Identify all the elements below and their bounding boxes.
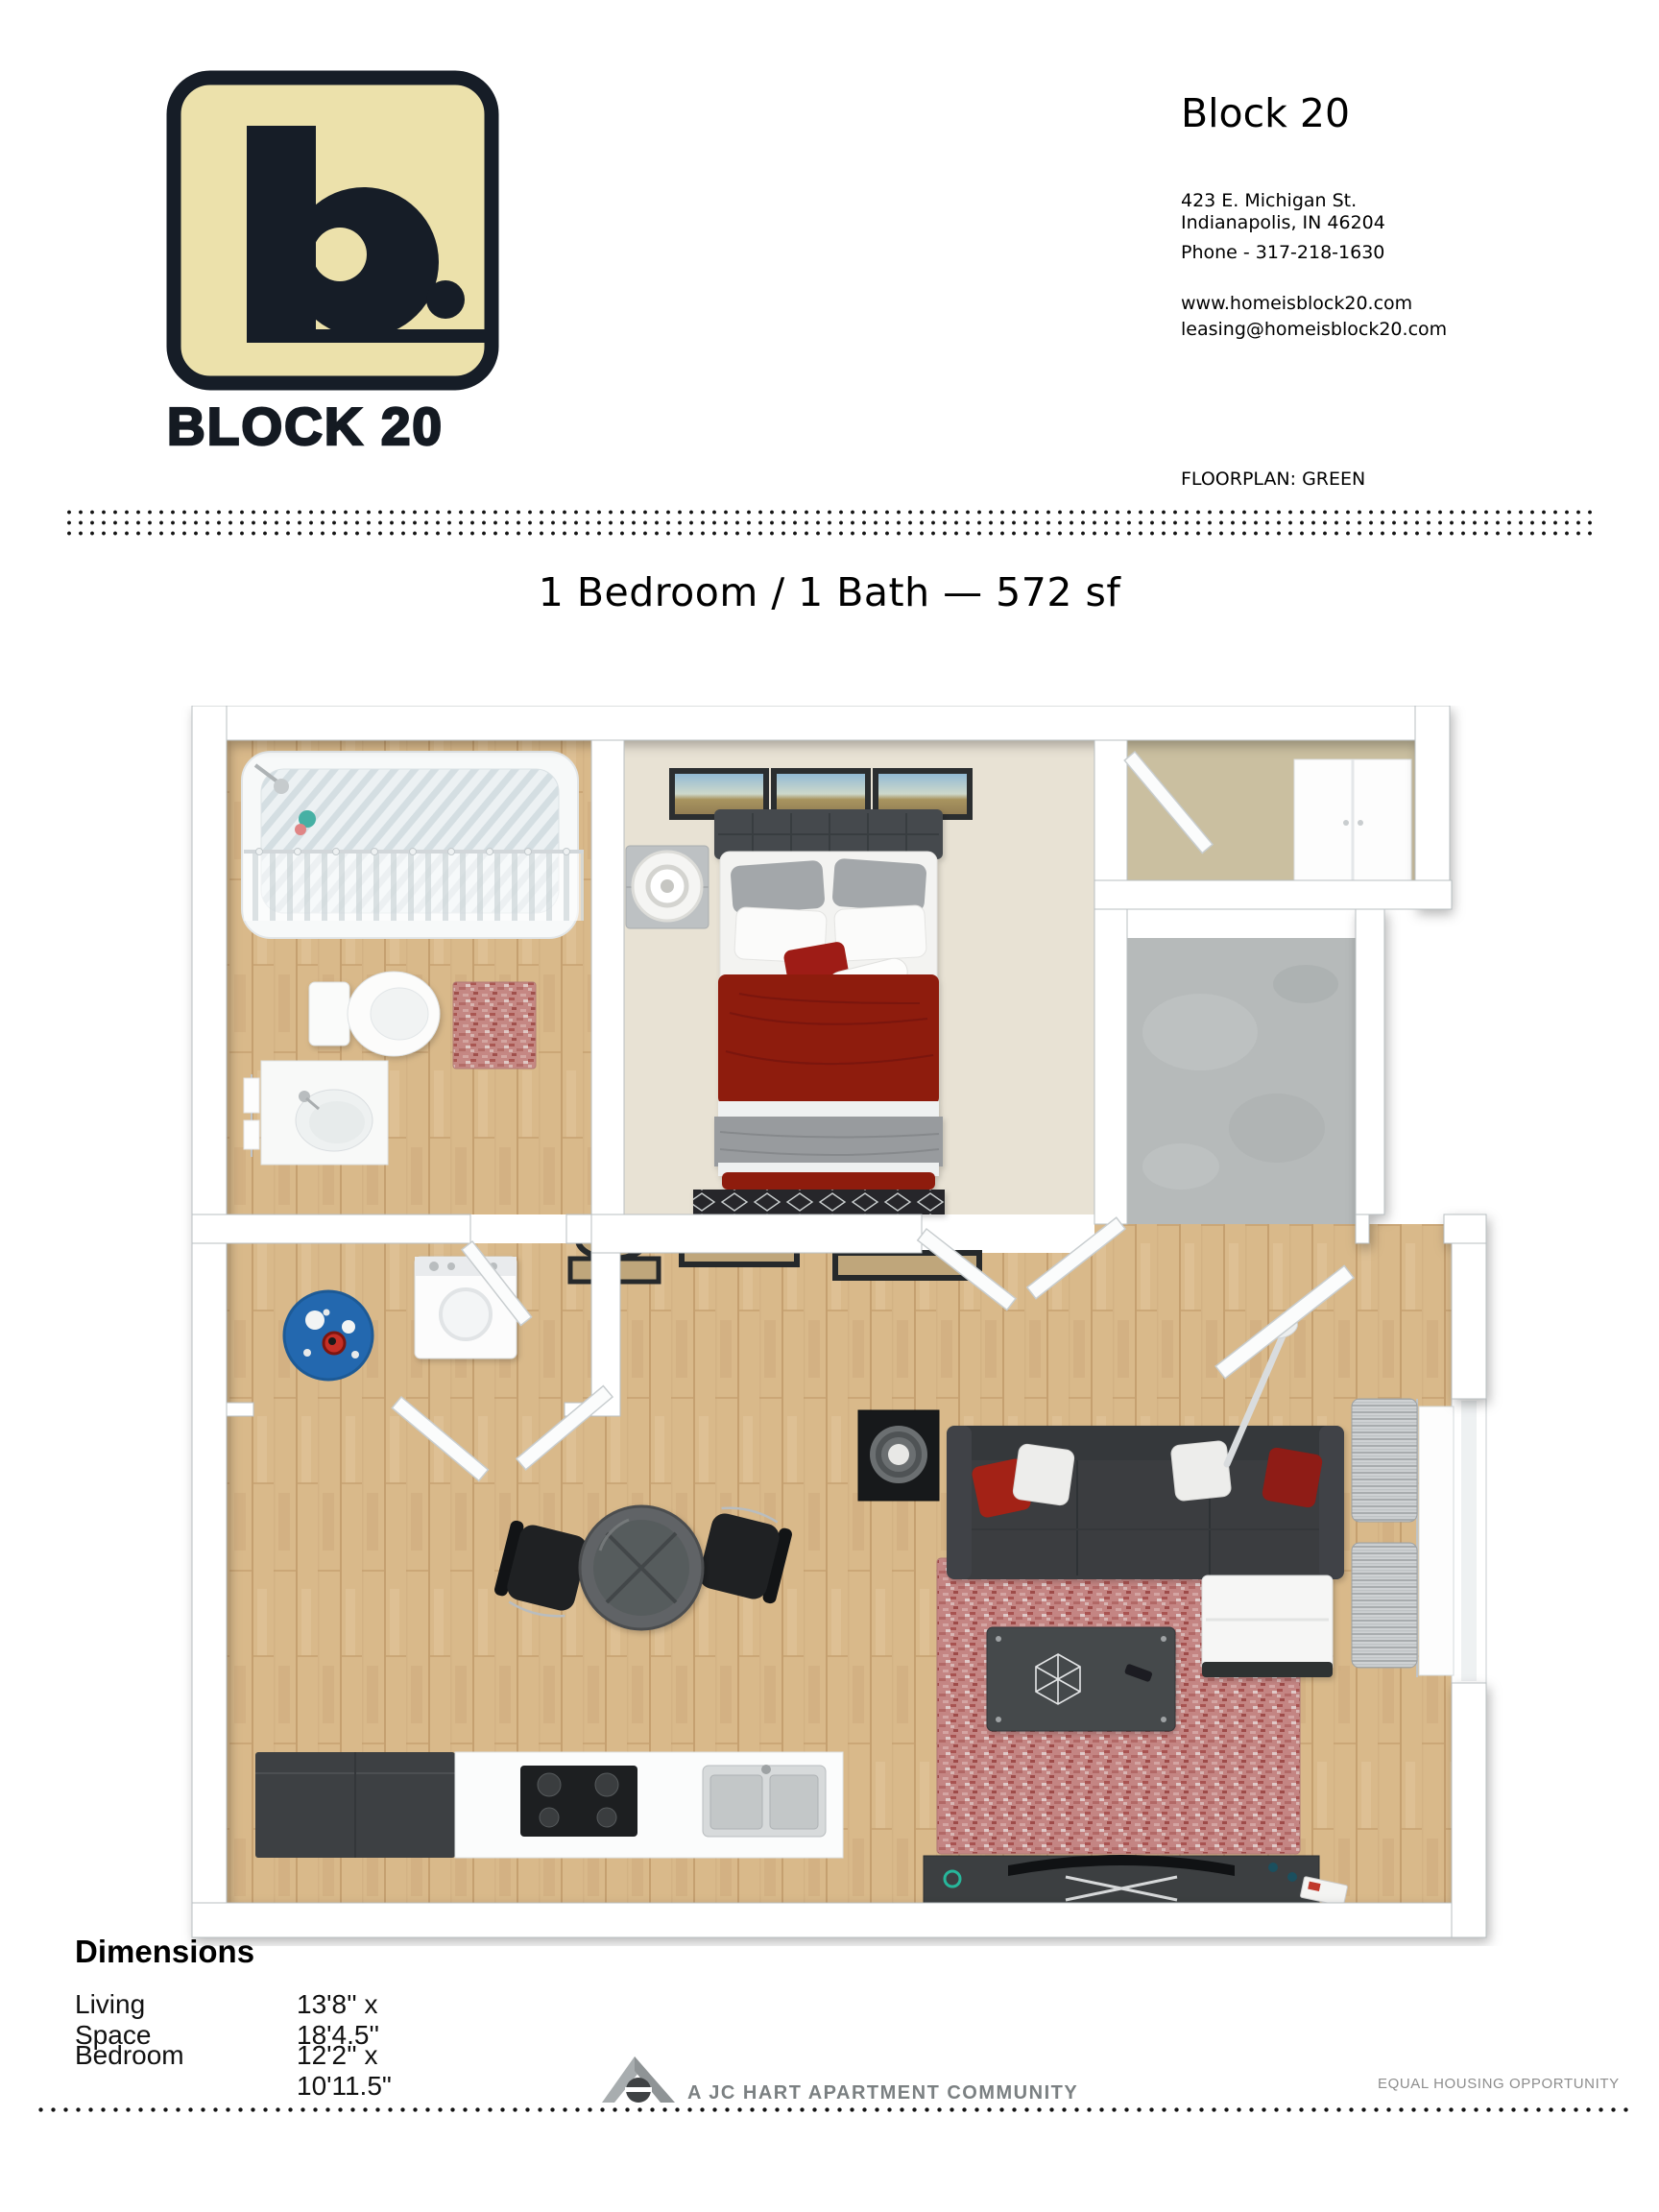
footer-divider-dotted <box>35 2104 1636 2115</box>
property-phone: Phone - 317-218-1630 <box>1181 242 1384 263</box>
gray-blanket <box>714 1117 943 1166</box>
property-name: Block 20 <box>1181 90 1350 136</box>
website-link[interactable]: www.homeisblock20.com <box>1181 291 1447 317</box>
tv-console-icon <box>924 1855 1348 1907</box>
property-address: 423 E. Michigan St. Indianapolis, IN 462… <box>1181 190 1385 234</box>
bathtub-icon <box>242 752 584 938</box>
laundry-floor <box>227 1243 591 1416</box>
block20-logo <box>166 70 499 391</box>
header-divider-dotted <box>63 507 1596 539</box>
email-link[interactable]: leasing@homeisblock20.com <box>1181 317 1447 343</box>
foot-runner <box>693 1190 945 1214</box>
floorplan-image <box>163 706 1507 1946</box>
curtains-icon <box>1352 1399 1417 1522</box>
bed-icon <box>693 809 945 1214</box>
side-table-icon <box>858 1410 939 1501</box>
dimension-label: Bedroom <box>75 2040 184 2071</box>
kitchen <box>255 1752 843 1858</box>
floorplan-label: FLOORPLAN: GREEN <box>1181 469 1365 490</box>
entry-concrete-floor <box>1127 938 1356 1224</box>
stove-icon <box>520 1766 637 1837</box>
curtains-icon <box>1352 1543 1417 1668</box>
shower-curtain-icon <box>244 849 584 922</box>
window-glass <box>1461 1401 1477 1681</box>
plan-title: 1 Bedroom / 1 Bath — 572 sf <box>0 569 1659 615</box>
dining-table-icon <box>580 1506 703 1629</box>
coffee-table-icon <box>987 1627 1175 1731</box>
window-sill <box>1419 1407 1454 1675</box>
address-line2: Indianapolis, IN 46204 <box>1181 212 1385 234</box>
jchart-house-icon <box>600 2045 677 2106</box>
property-links: www.homeisblock20.com leasing@homeisbloc… <box>1181 291 1447 343</box>
closet <box>1294 759 1411 886</box>
dimension-value: 12'2'' x 10'11.5" <box>297 2040 392 2102</box>
ottoman-icon <box>1202 1575 1333 1677</box>
brand-wordmark: BLOCK 20 <box>167 396 551 457</box>
bath-rug-icon <box>453 982 536 1069</box>
floorplan-flyer-page: BLOCK 20 Block 20 423 E. Michigan St. In… <box>0 0 1659 2212</box>
accent-pillow <box>1262 1447 1324 1509</box>
address-line1: 423 E. Michigan St. <box>1181 190 1385 212</box>
sofa-icon <box>947 1426 1344 1579</box>
vanity-sink-icon <box>244 1061 388 1165</box>
kitchen-sink-icon <box>703 1765 826 1837</box>
red-duvet <box>718 974 939 1105</box>
toilet-icon <box>309 972 440 1056</box>
laundry-rug-icon <box>284 1291 373 1380</box>
equal-housing-label: EQUAL HOUSING OPPORTUNITY <box>1378 2076 1620 2092</box>
dimensions-heading: Dimensions <box>75 1934 254 1970</box>
nightstand-lamp-icon <box>626 846 709 928</box>
washer-icon <box>415 1257 517 1358</box>
community-tagline: A JC HART APARTMENT COMMUNITY <box>687 2082 1078 2104</box>
